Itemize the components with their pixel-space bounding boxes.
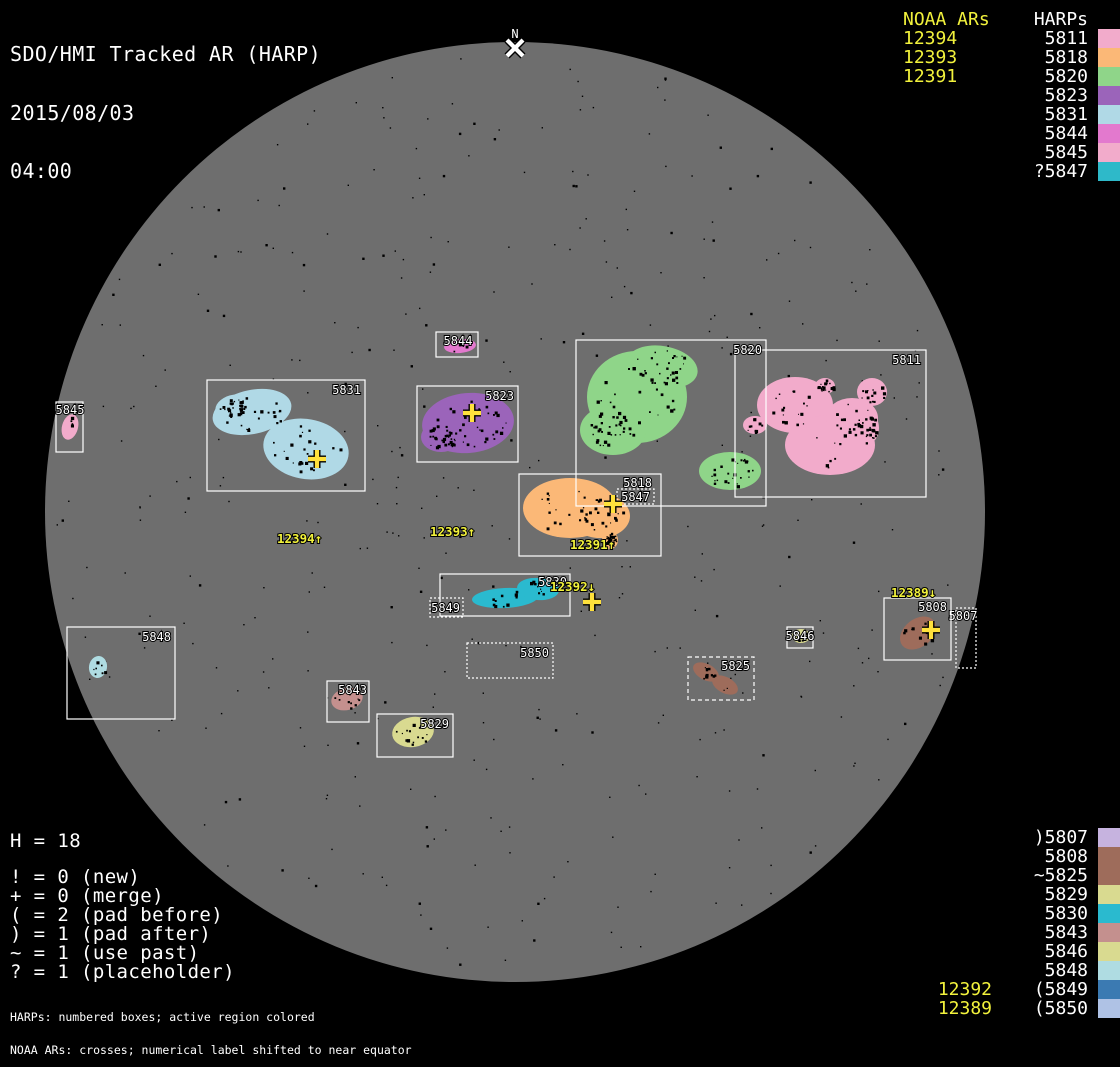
harp-box-label-5818: 5818 (623, 476, 652, 490)
legend-row-5847: ?5847 (900, 162, 1120, 181)
noaa-ar-number: 12393 (900, 48, 993, 67)
legend-row-5848: 5848 (900, 961, 1120, 980)
legend-color-swatch (1098, 885, 1120, 904)
harp-box-label-5850: 5850 (520, 646, 549, 660)
legend-color-swatch (1098, 999, 1120, 1018)
legend-color-swatch (1098, 980, 1120, 999)
legend-top-header-row: NOAA ARs HARPs (900, 10, 1120, 29)
harp-number: 5818 (993, 48, 1098, 67)
legend-top-rows: 1239458111239358181239158205823583158445… (900, 29, 1120, 181)
legend-row-5846: 5846 (900, 942, 1120, 961)
legend-color-swatch (1098, 866, 1120, 885)
harp-number: 5811 (993, 29, 1098, 48)
legend-row-5829: 5829 (900, 885, 1120, 904)
noaa-shifted-label-12392: 12392↓ (550, 579, 595, 594)
north-pole-label: N (511, 27, 518, 41)
legend-row-5830: 5830 (900, 904, 1120, 923)
harp-number: 5808 (993, 847, 1098, 866)
legend-row-5845: 5845 (900, 143, 1120, 162)
legend-top: NOAA ARs HARPs 1239458111239358181239158… (900, 10, 1120, 181)
legend-row-5808: 5808 (900, 847, 1120, 866)
noaa-shifted-label-12394: 12394↑ (277, 531, 322, 546)
legend-row-5831: 5831 (900, 105, 1120, 124)
flag-legend-block: ! = 0 (new)+ = 0 (merge)( = 2 (pad befor… (10, 868, 235, 982)
harp-box-label-5847: 5847 (621, 490, 650, 504)
legend-color-swatch (1098, 143, 1120, 162)
noaa-ar-number: 12394 (900, 29, 993, 48)
harp-box-label-5845: 5845 (56, 403, 85, 417)
legend-row-5850: 12389(5850 (900, 999, 1120, 1018)
harp-box-label-5811: 5811 (892, 353, 921, 367)
harp-number: 5843 (993, 923, 1098, 942)
legend-color-swatch (1098, 124, 1120, 143)
harp-number: ~5825 (993, 866, 1098, 885)
plot-title-block: SDO/HMI Tracked AR (HARP) 2015/08/03 04:… (10, 6, 321, 201)
legend-row-5820: 123915820 (900, 67, 1120, 86)
noaa-ar-number: 12391 (900, 67, 993, 86)
legend-color-swatch (1098, 29, 1120, 48)
harp-number: ?5847 (993, 162, 1098, 181)
harp-number: 5820 (993, 67, 1098, 86)
legend-swatch-spacer (1098, 10, 1120, 29)
harp-box-label-5807: 5807 (949, 609, 978, 623)
harp-number: 5848 (993, 961, 1098, 980)
legend-color-swatch (1098, 942, 1120, 961)
legend-color-swatch (1098, 923, 1120, 942)
observation-time: 04:00 (10, 162, 321, 182)
footer-caption: HARPs: numbered boxes; active region col… (10, 990, 412, 1067)
harp-box-label-5844: 5844 (444, 334, 473, 348)
legend-color-swatch (1098, 67, 1120, 86)
flag-legend-line: ? = 1 (placeholder) (10, 963, 235, 982)
harp-box-label-5825: 5825 (721, 659, 750, 673)
noaa-shifted-label-12393: 12393↑ (430, 524, 475, 539)
harp-box-label-5829: 5829 (420, 717, 449, 731)
legend-row-5825: ~5825 (900, 866, 1120, 885)
harp-box-label-5808: 5808 (918, 600, 947, 614)
harp-tracking-screenshot: { "title": {"line1": "SDO/HMI Tracked AR… (0, 0, 1120, 1024)
legend-row-5818: 123935818 (900, 48, 1120, 67)
legend-row-5844: 5844 (900, 124, 1120, 143)
noaa-ar-number: 12392 (900, 980, 993, 999)
legend-color-swatch (1098, 105, 1120, 124)
legend-color-swatch (1098, 828, 1120, 847)
harp-box-label-5846: 5846 (786, 629, 815, 643)
harp-box-label-5820: 5820 (733, 343, 762, 357)
harp-number: )5807 (993, 828, 1098, 847)
legend-bottom-rows: )58075808~58255829583058435846584812392(… (900, 828, 1120, 1018)
harp-number: 5823 (993, 86, 1098, 105)
noaa-shifted-label-12389: 12389↓ (891, 585, 936, 600)
harp-box-label-5843: 5843 (338, 683, 367, 697)
harp-box-label-5823: 5823 (485, 389, 514, 403)
harp-number: 5844 (993, 124, 1098, 143)
footer-line-noaa: NOAA ARs: crosses; numerical label shift… (10, 1045, 412, 1056)
footer-line-harps: HARPs: numbered boxes; active region col… (10, 1012, 412, 1023)
harp-count-line: H = 18 (10, 830, 81, 852)
harp-number: (5850 (993, 999, 1098, 1018)
harp-number: 5830 (993, 904, 1098, 923)
harp-box-label-5831: 5831 (332, 383, 361, 397)
harp-number: 5831 (993, 105, 1098, 124)
noaa-ars-header: NOAA ARs (900, 10, 993, 29)
legend-row-5811: 123945811 (900, 29, 1120, 48)
legend-row-5849: 12392(5849 (900, 980, 1120, 999)
harp-number: (5849 (993, 980, 1098, 999)
harps-header: HARPs (993, 10, 1098, 29)
legend-color-swatch (1098, 904, 1120, 923)
legend-color-swatch (1098, 847, 1120, 866)
harp-number: 5845 (993, 143, 1098, 162)
harp-number: 5846 (993, 942, 1098, 961)
legend-bottom: )58075808~58255829583058435846584812392(… (900, 828, 1120, 1018)
page-title: SDO/HMI Tracked AR (HARP) (10, 45, 321, 65)
noaa-shifted-label-12391: 12391↑ (570, 537, 615, 552)
harp-box-label-5849: 5849 (431, 601, 460, 615)
harp-number: 5829 (993, 885, 1098, 904)
legend-color-swatch (1098, 162, 1120, 181)
harp-box-label-5848: 5848 (142, 630, 171, 644)
legend-row-5823: 5823 (900, 86, 1120, 105)
legend-row-5843: 5843 (900, 923, 1120, 942)
legend-row-5807: )5807 (900, 828, 1120, 847)
legend-color-swatch (1098, 48, 1120, 67)
legend-color-swatch (1098, 961, 1120, 980)
noaa-ar-number: 12389 (900, 999, 993, 1018)
legend-color-swatch (1098, 86, 1120, 105)
observation-date: 2015/08/03 (10, 104, 321, 124)
